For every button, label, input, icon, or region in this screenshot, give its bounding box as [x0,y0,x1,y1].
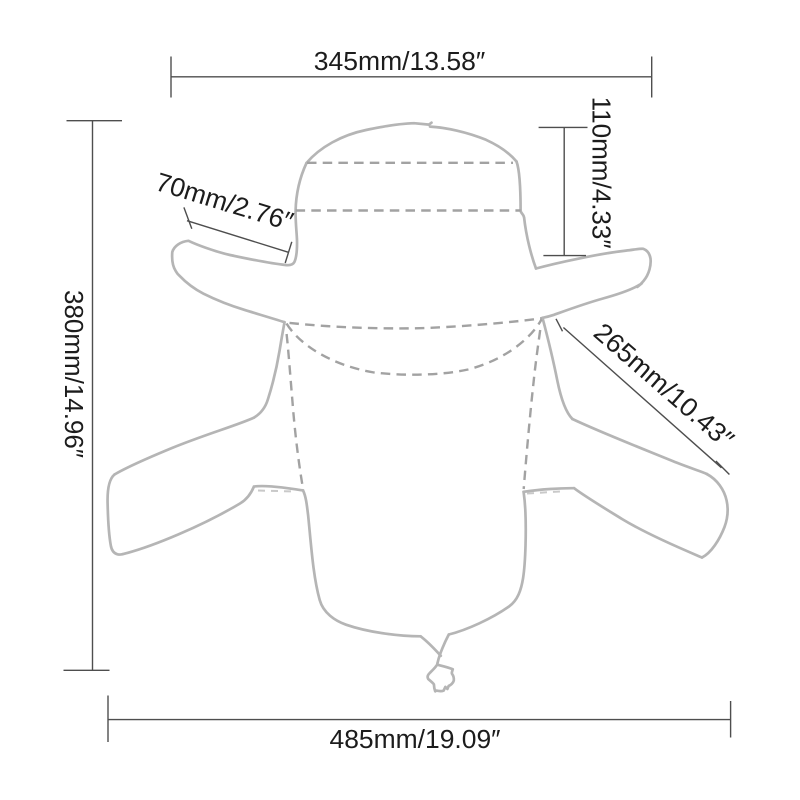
svg-text:485mm/19.09″: 485mm/19.09″ [330,724,501,754]
svg-text:110mm/4.33″: 110mm/4.33″ [587,97,617,249]
svg-text:265mm/10.43″: 265mm/10.43″ [588,317,740,454]
svg-text:380mm/14.96″: 380mm/14.96″ [59,290,89,458]
svg-text:70mm/2.76″: 70mm/2.76″ [152,167,297,237]
svg-text:345mm/13.58″: 345mm/13.58″ [314,46,486,76]
